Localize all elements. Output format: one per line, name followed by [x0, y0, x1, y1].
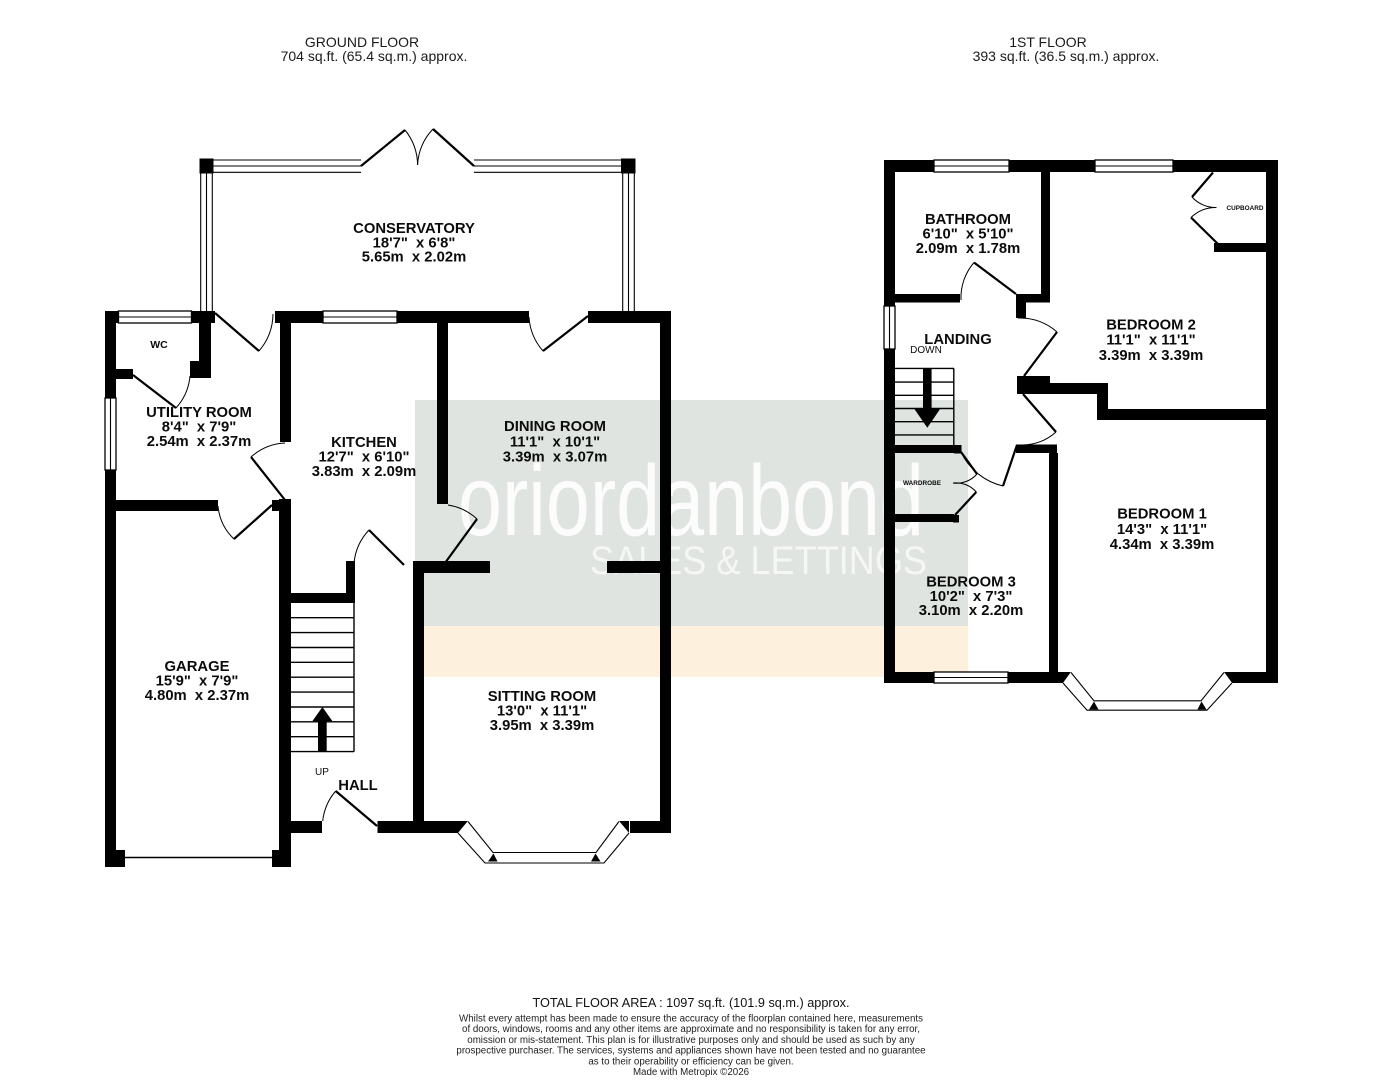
svg-text:3.95m x 3.39m: 3.95m x 3.39m: [490, 718, 594, 734]
svg-text:of doors, windows, rooms and a: of doors, windows, rooms and any other i…: [462, 1024, 920, 1035]
svg-text:393 sq.ft. (36.5 sq.m.) approx: 393 sq.ft. (36.5 sq.m.) approx.: [973, 48, 1160, 64]
svg-text:HALL: HALL: [338, 778, 377, 794]
svg-text:5.65m x 2.02m: 5.65m x 2.02m: [362, 250, 466, 266]
svg-text:WC: WC: [150, 339, 168, 351]
svg-text:3.39m x 3.39m: 3.39m x 3.39m: [1099, 348, 1203, 364]
svg-text:4.80m x 2.37m: 4.80m x 2.37m: [145, 688, 249, 704]
svg-text:Made with Metropix ©2026: Made with Metropix ©2026: [633, 1067, 749, 1078]
svg-text:UP: UP: [315, 767, 329, 778]
svg-text:14'3" x 11'1": 14'3" x 11'1": [1117, 522, 1207, 538]
svg-text:Whilst every attempt has been: Whilst every attempt has been made to en…: [459, 1014, 923, 1025]
svg-text:BEDROOM 1: BEDROOM 1: [1117, 507, 1207, 523]
svg-text:DINING ROOM: DINING ROOM: [504, 419, 606, 435]
svg-text:BEDROOM 2: BEDROOM 2: [1106, 317, 1196, 333]
svg-text:3.10m x 2.20m: 3.10m x 2.20m: [919, 603, 1023, 619]
svg-text:TOTAL FLOOR AREA : 1097 sq.ft.: TOTAL FLOOR AREA : 1097 sq.ft. (101.9 sq…: [532, 996, 849, 1010]
svg-text:as to their operability or eff: as to their operability or efficiency ca…: [588, 1056, 793, 1067]
svg-text:WARDROBE: WARDROBE: [903, 480, 942, 487]
svg-text:2.09m x 1.78m: 2.09m x 1.78m: [916, 241, 1020, 257]
svg-text:4.34m x 3.39m: 4.34m x 3.39m: [1110, 537, 1214, 553]
svg-text:3.39m x 3.07m: 3.39m x 3.07m: [503, 450, 607, 466]
svg-text:DOWN: DOWN: [910, 345, 942, 356]
svg-text:11'1" x 11'1": 11'1" x 11'1": [1106, 333, 1195, 349]
svg-text:704 sq.ft. (65.4 sq.m.) approx: 704 sq.ft. (65.4 sq.m.) approx.: [281, 48, 468, 64]
svg-text:CUPBOARD: CUPBOARD: [1227, 205, 1264, 212]
svg-text:omission or mis-statement. Thi: omission or mis-statement. This plan is …: [467, 1035, 915, 1046]
svg-text:prospective purchaser. The ser: prospective purchaser. The services, sys…: [456, 1046, 925, 1057]
svg-text:2.54m x 2.37m: 2.54m x 2.37m: [147, 434, 251, 450]
svg-text:3.83m x 2.09m: 3.83m x 2.09m: [312, 464, 416, 480]
svg-text:11'1" x 10'1": 11'1" x 10'1": [510, 434, 600, 450]
